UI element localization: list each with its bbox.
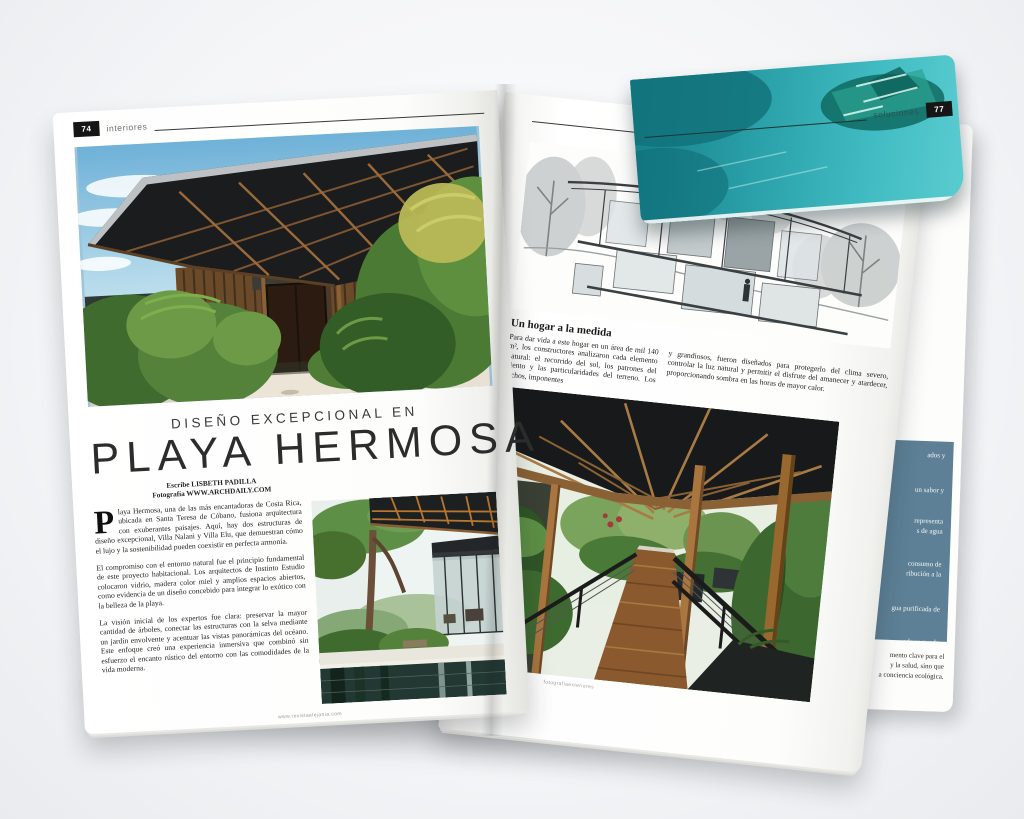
hero-svg xyxy=(74,126,492,407)
paragraph-1: Playa Hermosa, una de las más encantador… xyxy=(93,498,303,556)
pool-photo-illustration xyxy=(311,492,506,704)
page-number-badge: 77 xyxy=(926,101,953,118)
hero-photo-illustration xyxy=(74,126,492,407)
magazine-spread-scene: ados yun sabor yrepresentas de aguaconsu… xyxy=(0,0,1024,819)
page-number-badge: 74 xyxy=(73,121,100,137)
section-label: soluciones xyxy=(873,106,920,120)
left-page: 74 interiores xyxy=(53,90,530,734)
article-body-column: Playa Hermosa, una de las más encantador… xyxy=(93,498,312,716)
paragraph-2: El compromiso con el entorno natural fue… xyxy=(96,553,306,611)
dropcap: P xyxy=(93,507,119,536)
teal-page-flap: soluciones 77 xyxy=(630,55,965,225)
paragraph-3: La visión inicial de los expertos fue cl… xyxy=(99,608,310,675)
article-body-row: Playa Hermosa, una de las más encantador… xyxy=(93,487,514,715)
pool-svg xyxy=(311,492,506,704)
section-label: interiores xyxy=(106,121,147,133)
